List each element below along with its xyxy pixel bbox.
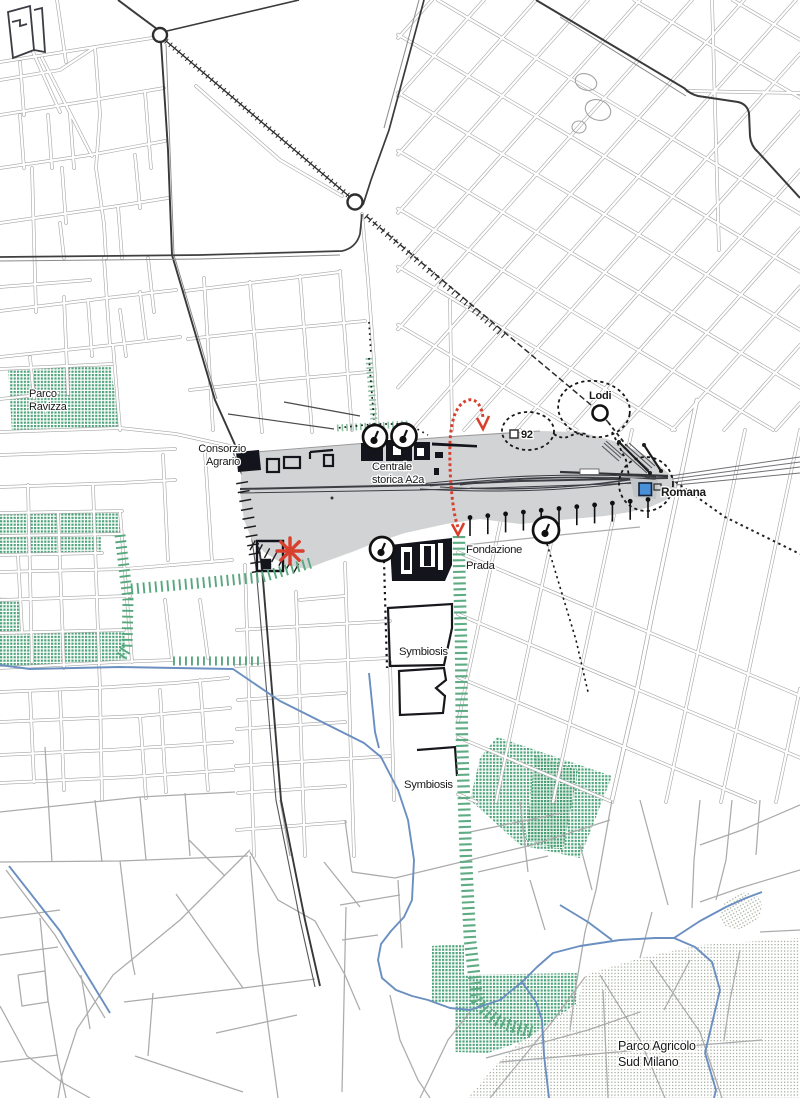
svg-text:Fondazione: Fondazione [466,544,522,556]
svg-text:Romana: Romana [661,485,706,499]
svg-text:Lodi: Lodi [589,390,612,402]
svg-text:92: 92 [521,429,533,441]
svg-text:Ravizza: Ravizza [29,401,68,413]
svg-text:Prada: Prada [466,560,496,572]
svg-text:storica A2a: storica A2a [372,474,425,486]
svg-text:Parco Agricolo: Parco Agricolo [618,1039,696,1053]
svg-text:Agrario: Agrario [206,456,240,468]
svg-text:Sud Milano: Sud Milano [618,1055,679,1069]
svg-text:Parco: Parco [29,388,57,400]
svg-text:Symbiosis: Symbiosis [404,779,453,791]
svg-text:Consorzio: Consorzio [198,443,246,455]
svg-text:Symbiosis: Symbiosis [399,646,448,658]
svg-text:Centrale: Centrale [372,461,412,473]
